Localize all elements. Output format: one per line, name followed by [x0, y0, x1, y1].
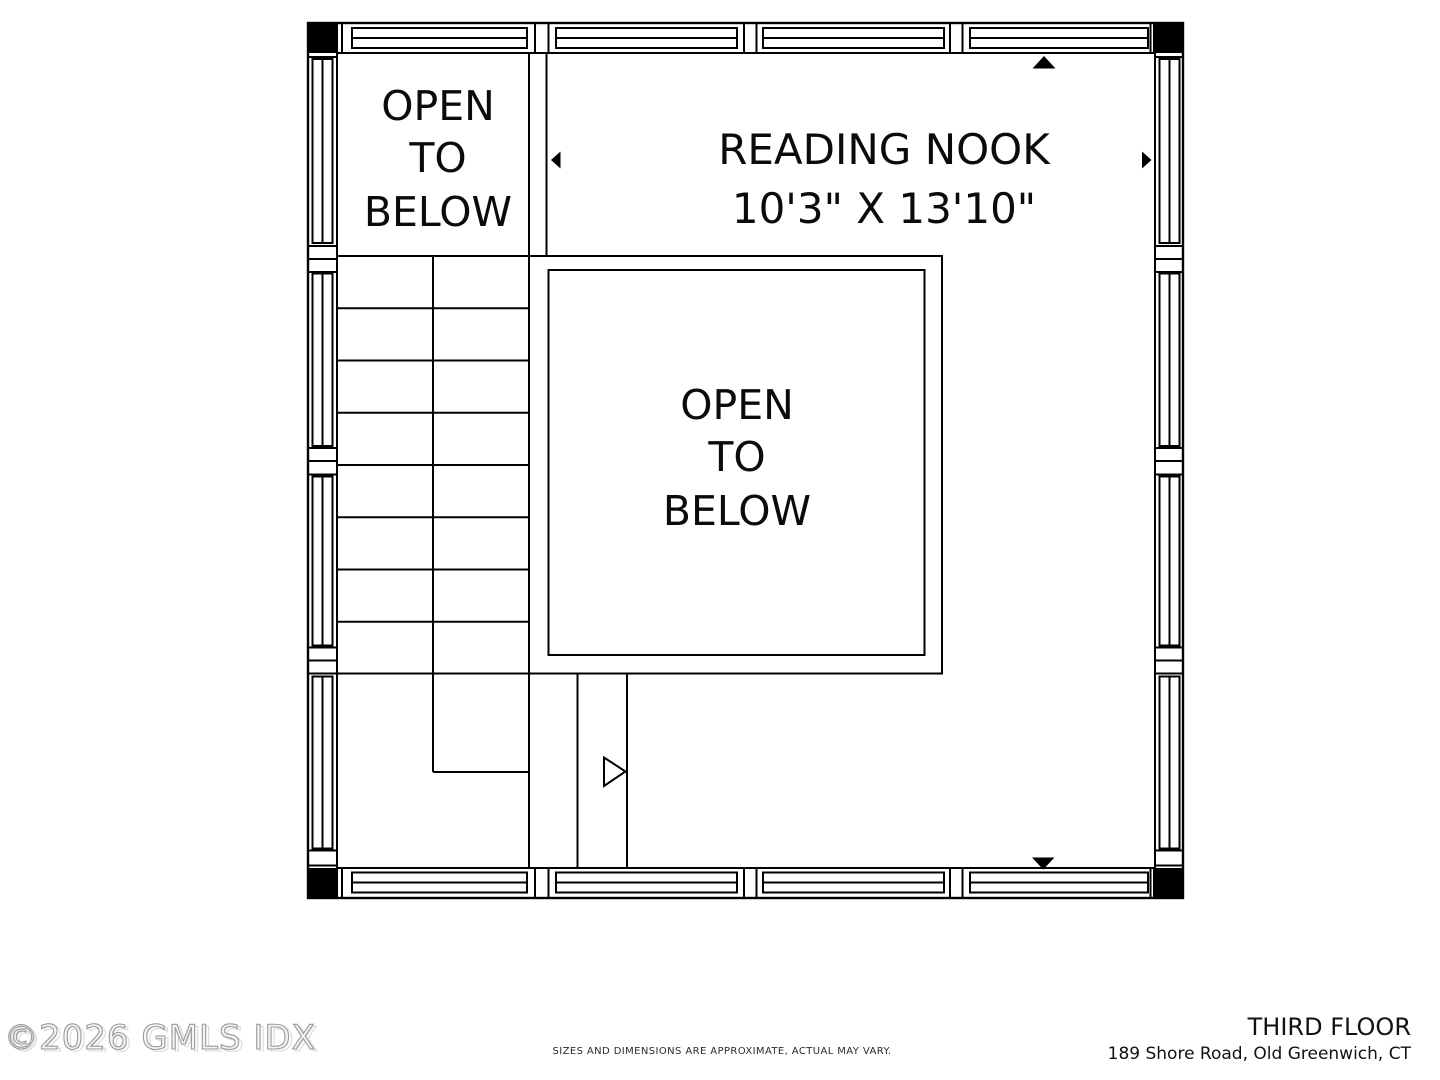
- open-to-below-top-label-line2: TO: [408, 134, 466, 182]
- triangle-right-icon: [1142, 152, 1152, 169]
- open-to-below-center-label-line2: TO: [707, 433, 765, 481]
- stair-direction-arrow-icon: [604, 758, 626, 787]
- disclaimer-text: SIZES AND DIMENSIONS ARE APPROXIMATE, AC…: [553, 1046, 892, 1057]
- address-text: 189 Shore Road, Old Greenwich, CT: [1108, 1044, 1412, 1064]
- footer: ©2026 GMLS IDX ©2026 GMLS IDX SIZES AND …: [4, 1013, 1412, 1064]
- plan-markers: [551, 56, 1152, 870]
- corner-post-bottom-left: [308, 868, 338, 898]
- left-wall-windows: [308, 57, 337, 866]
- open-to-below-center-label-line3: BELOW: [663, 487, 811, 535]
- open-to-below-center-label-line1: OPEN: [680, 381, 794, 429]
- top-wall-windows: [342, 23, 1151, 53]
- floorplan-drawing: OPEN TO BELOW READING NOOK 10'3" X 13'10…: [0, 0, 1440, 1080]
- reading-nook-label: READING NOOK: [718, 125, 1051, 174]
- triangle-up-icon: [1033, 56, 1056, 69]
- corner-post-bottom-right: [1153, 868, 1183, 898]
- triangle-left-icon: [551, 152, 561, 169]
- right-wall-windows: [1155, 57, 1183, 866]
- reading-nook-dimensions: 10'3" X 13'10": [732, 184, 1036, 233]
- staircase: [337, 256, 627, 868]
- open-to-below-top-label-line1: OPEN: [381, 82, 495, 130]
- floor-title: THIRD FLOOR: [1247, 1013, 1411, 1041]
- watermark: ©2026 GMLS IDX: [4, 1018, 316, 1058]
- open-to-below-top-label-line3: BELOW: [364, 188, 512, 236]
- corner-post-top-right: [1153, 23, 1183, 53]
- floorplan-page: OPEN TO BELOW READING NOOK 10'3" X 13'10…: [0, 0, 1440, 1080]
- bottom-wall-windows: [342, 868, 1151, 898]
- corner-post-top-left: [308, 23, 338, 53]
